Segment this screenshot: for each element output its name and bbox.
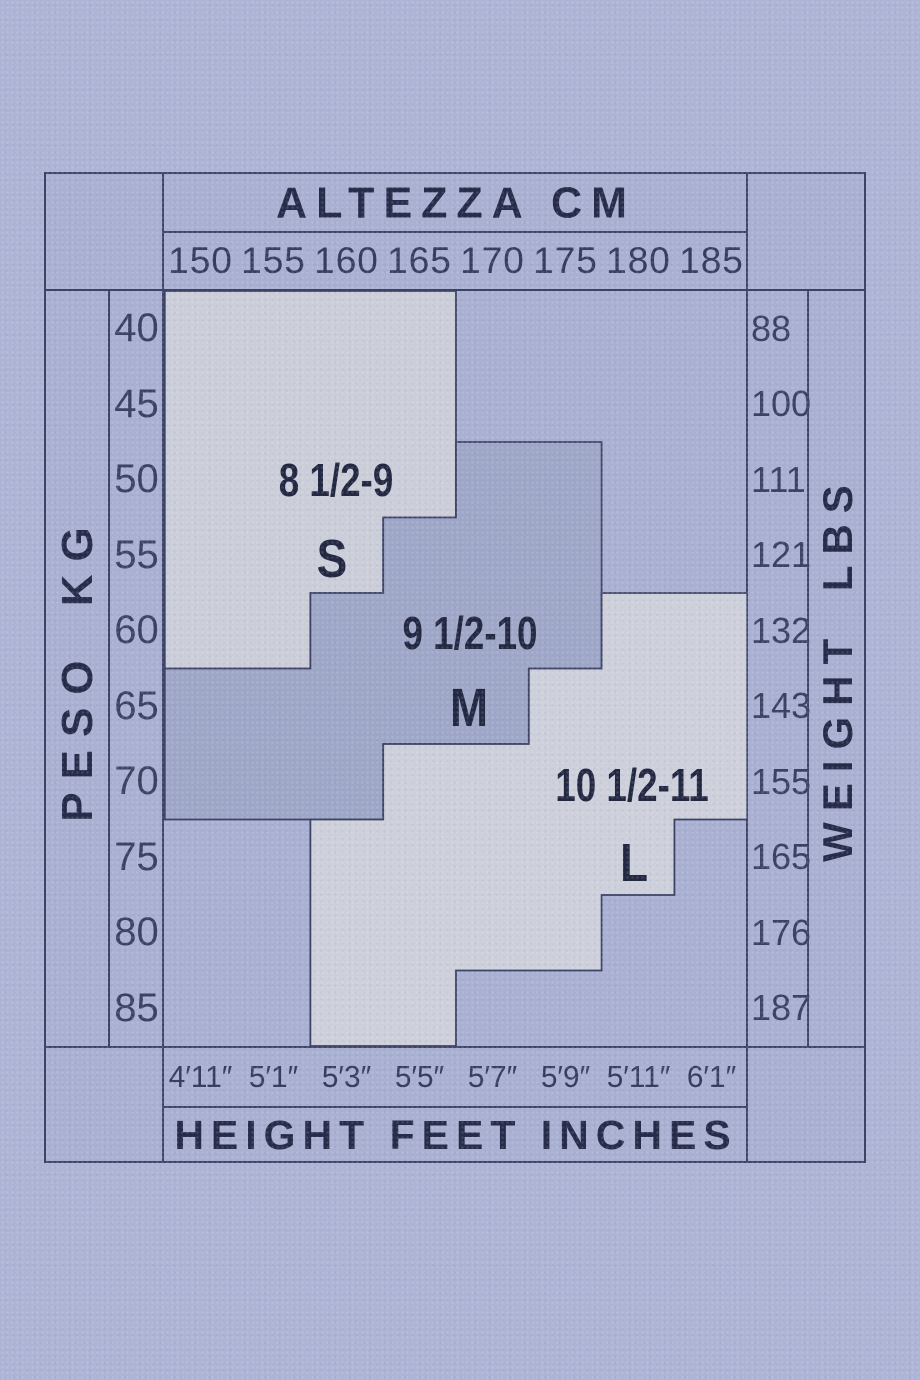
kg-value: 75 — [110, 820, 163, 896]
feet-tick: 5′1″ — [238, 1047, 308, 1106]
size-regions-canvas — [164, 291, 748, 1046]
feet-tick: 5′7″ — [457, 1047, 527, 1106]
lbs-value: 88 — [749, 291, 807, 367]
cm-tick: 165 — [383, 233, 456, 289]
peso-kg-axis-label: PESO KG — [53, 514, 103, 822]
kg-value: 60 — [110, 593, 163, 669]
size-grid: 8 1/2-9 S 9 1/2-10 M 10 1/2-11 L — [164, 291, 748, 1046]
lbs-value: 111 — [749, 442, 807, 518]
lbs-value: 132 — [749, 593, 807, 669]
kg-value: 55 — [110, 518, 163, 594]
cm-tick-row: 150 155 160 165 170 175 180 185 — [164, 233, 748, 289]
cm-tick: 160 — [310, 233, 383, 289]
cm-tick: 155 — [237, 233, 310, 289]
feet-tick: 5′11″ — [603, 1047, 673, 1106]
feet-tick-row: 4′11″ 5′1″ 5′3″ 5′5″ 5′7″ 5′9″ 5′11″ 6′1… — [164, 1047, 748, 1106]
cm-tick: 175 — [529, 233, 602, 289]
cm-tick: 150 — [164, 233, 237, 289]
altezza-cm-header: ALTEZZA CM — [164, 173, 748, 231]
feet-tick: 5′5″ — [384, 1047, 454, 1106]
lbs-value: 155 — [749, 744, 807, 820]
kg-value: 65 — [110, 669, 163, 745]
lbs-value: 100 — [749, 367, 807, 443]
size-s-letter: S — [317, 528, 348, 590]
feet-tick: 5′3″ — [311, 1047, 381, 1106]
weight-lbs-axis-label: WEIGHT LBS — [814, 474, 862, 862]
lbs-value: 165 — [749, 820, 807, 896]
kg-value: 70 — [110, 744, 163, 820]
lbs-value: 176 — [749, 895, 807, 971]
kg-value: 85 — [110, 971, 163, 1047]
size-l-range-label: 10 1/2-11 — [555, 758, 708, 812]
size-s-range-label: 8 1/2-9 — [279, 453, 394, 507]
kg-value: 80 — [110, 895, 163, 971]
lbs-value: 187 — [749, 971, 807, 1047]
lbs-value-column: 88 100 111 121 132 143 155 165 176 187 — [749, 291, 807, 1046]
scanned-size-chart-page: ALTEZZA CM 150 155 160 165 170 175 180 1… — [0, 0, 920, 1380]
cm-tick: 185 — [675, 233, 748, 289]
height-feet-inches-header: HEIGHT FEET INCHES — [164, 1108, 748, 1161]
size-l-letter: L — [620, 832, 648, 894]
size-m-range-label: 9 1/2-10 — [402, 606, 537, 660]
feet-tick: 6′1″ — [676, 1047, 746, 1106]
cm-tick: 170 — [456, 233, 529, 289]
feet-tick: 5′9″ — [530, 1047, 600, 1106]
lbs-value: 121 — [749, 518, 807, 594]
feet-tick: 4′11″ — [165, 1047, 235, 1106]
cm-tick: 180 — [602, 233, 675, 289]
kg-value-column: 40 45 50 55 60 65 70 75 80 85 — [110, 291, 163, 1046]
kg-value: 50 — [110, 442, 163, 518]
kg-value: 40 — [110, 291, 163, 367]
size-chart-table: ALTEZZA CM 150 155 160 165 170 175 180 1… — [44, 172, 866, 1163]
size-m-letter: M — [450, 677, 488, 739]
lbs-value: 143 — [749, 669, 807, 745]
kg-value: 45 — [110, 367, 163, 443]
